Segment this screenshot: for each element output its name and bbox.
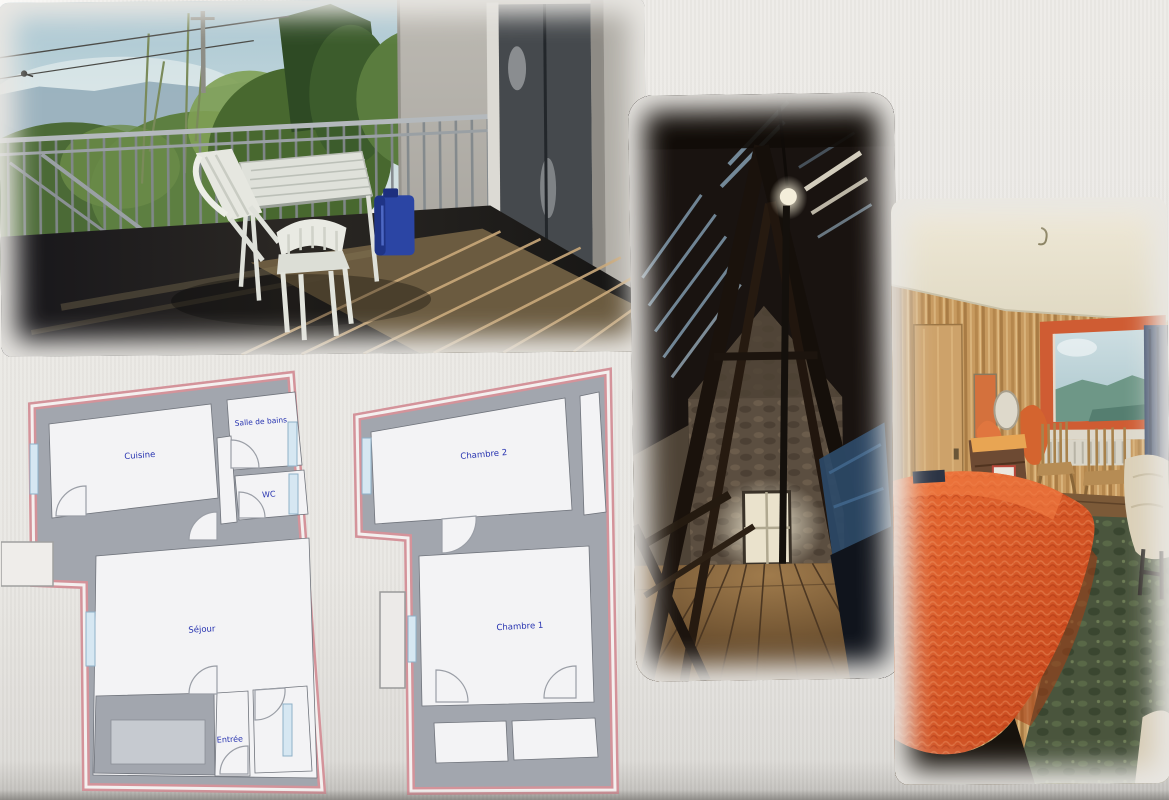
dark-object-on-floor — [913, 470, 946, 484]
attic-photo — [628, 92, 902, 682]
plan1-annex — [1, 542, 53, 586]
bedroom-photo-art — [891, 197, 1169, 785]
floor-plan-upper: Chambre 2 Chambre 1 — [337, 364, 627, 798]
screen-bottom-shadow — [0, 790, 1169, 800]
property-collage: Cuisine Salle de bains WC Séjour Entrée — [0, 0, 1169, 800]
room-label-sejour: Séjour — [188, 623, 216, 635]
terrace-photo — [0, 0, 648, 357]
bedroom-photo — [891, 197, 1169, 785]
jerrycan — [374, 188, 415, 255]
plan2-balcony — [380, 592, 405, 688]
room-label-entree: Entrée — [216, 733, 243, 744]
floor-plan-ground: Cuisine Salle de bains WC Séjour Entrée — [1, 364, 335, 798]
terrace-photo-art — [0, 0, 648, 357]
room-label-wc: WC — [262, 490, 277, 500]
attic-photo-art — [628, 92, 902, 682]
utility-pole — [201, 11, 206, 93]
